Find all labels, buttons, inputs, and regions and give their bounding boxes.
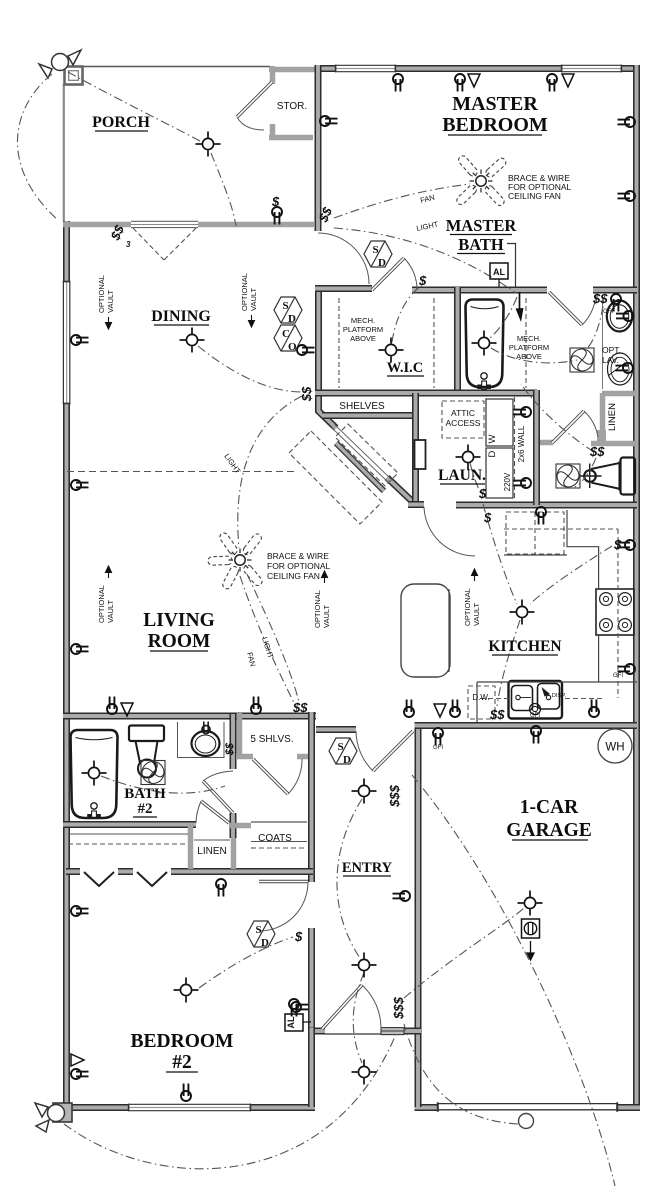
svg-text:S: S: [373, 244, 379, 256]
svg-text:GFI: GFI: [530, 713, 540, 719]
svg-text:VAULT: VAULT: [472, 603, 481, 626]
svg-text:KITCHEN: KITCHEN: [488, 638, 561, 655]
svg-text:D: D: [261, 937, 269, 949]
svg-text:$$: $$: [299, 386, 314, 402]
svg-text:LINEN: LINEN: [197, 846, 226, 857]
svg-text:D: D: [288, 313, 296, 325]
svg-text:#2: #2: [172, 1052, 192, 1073]
svg-text:220V: 220V: [503, 472, 512, 491]
svg-text:S: S: [256, 924, 262, 936]
svg-text:GARAGE: GARAGE: [506, 820, 592, 841]
svg-text:5 SHLVS.: 5 SHLVS.: [250, 734, 293, 745]
svg-text:$: $: [478, 486, 487, 501]
svg-text:O: O: [288, 341, 297, 353]
svg-text:1-CAR: 1-CAR: [520, 797, 579, 818]
svg-text:COATS: COATS: [258, 833, 292, 844]
svg-text:MECH.: MECH.: [351, 316, 375, 325]
svg-text:CEILING FAN: CEILING FAN: [267, 571, 320, 581]
svg-text:MASTER: MASTER: [446, 216, 518, 235]
svg-text:$: $: [294, 929, 303, 944]
svg-text:$: $: [483, 510, 492, 525]
svg-text:OPTIONAL: OPTIONAL: [240, 273, 249, 311]
svg-text:OPTIONAL: OPTIONAL: [463, 588, 472, 626]
svg-text:SHELVES: SHELVES: [339, 401, 385, 412]
svg-text:OPT.: OPT.: [602, 345, 621, 355]
svg-text:GFI: GFI: [603, 309, 613, 315]
svg-text:STOR.: STOR.: [277, 101, 307, 112]
svg-text:D: D: [343, 754, 351, 766]
svg-text:DINING: DINING: [151, 308, 211, 325]
svg-text:LIVING: LIVING: [143, 610, 215, 631]
svg-text:OPTIONAL: OPTIONAL: [313, 590, 322, 628]
svg-text:2x6 WALL: 2x6 WALL: [517, 425, 526, 462]
svg-text:BEDROOM: BEDROOM: [131, 1031, 234, 1052]
svg-text:3: 3: [126, 240, 131, 249]
svg-text:WH: WH: [605, 742, 624, 754]
svg-text:#2: #2: [138, 801, 153, 817]
svg-text:BATH: BATH: [458, 235, 504, 254]
svg-text:BEDROOM: BEDROOM: [442, 114, 548, 136]
svg-text:MECH.: MECH.: [517, 334, 541, 343]
svg-text:ABOVE: ABOVE: [350, 334, 376, 343]
svg-text:GFI: GFI: [433, 745, 443, 751]
svg-text:AL: AL: [286, 1016, 296, 1028]
svg-text:D: D: [378, 257, 386, 269]
svg-text:PORCH: PORCH: [92, 114, 150, 131]
svg-text:$: $: [613, 537, 622, 552]
svg-text:BATH: BATH: [124, 786, 166, 802]
svg-text:DISP.: DISP.: [552, 693, 567, 699]
svg-text:VAULT: VAULT: [249, 288, 258, 311]
svg-text:PLATFORM: PLATFORM: [343, 325, 383, 334]
svg-text:ENTRY: ENTRY: [342, 860, 393, 876]
svg-text:VAULT: VAULT: [106, 600, 115, 623]
svg-text:$: $: [271, 194, 280, 209]
svg-text:ABOVE: ABOVE: [516, 352, 542, 361]
svg-text:ROOM: ROOM: [148, 631, 211, 652]
svg-text:OPTIONAL: OPTIONAL: [97, 585, 106, 623]
svg-text:C: C: [282, 328, 290, 340]
svg-text:$: $: [418, 273, 427, 288]
svg-text:LAUN.: LAUN.: [438, 467, 486, 484]
svg-text:AL: AL: [493, 267, 505, 277]
svg-text:S: S: [338, 741, 344, 753]
svg-text:W: W: [487, 434, 498, 443]
svg-text:FOR OPTIONAL: FOR OPTIONAL: [267, 561, 331, 571]
svg-text:ATTIC: ATTIC: [451, 408, 475, 418]
svg-text:PLATFORM: PLATFORM: [509, 343, 549, 352]
svg-text:CEILING FAN: CEILING FAN: [508, 191, 561, 201]
svg-text:LAV.: LAV.: [602, 355, 619, 365]
svg-text:VAULT: VAULT: [322, 605, 331, 628]
svg-text:W.I.C: W.I.C: [387, 360, 424, 376]
svg-text:$$: $$: [592, 291, 608, 306]
svg-text:$$: $$: [224, 742, 236, 756]
svg-text:$$: $$: [292, 700, 308, 715]
svg-text:GFI: GFI: [613, 673, 623, 679]
svg-text:$$: $$: [589, 444, 605, 459]
svg-text:MASTER: MASTER: [452, 93, 538, 115]
svg-text:D: D: [487, 450, 498, 457]
svg-text:$$: $$: [489, 707, 505, 722]
svg-text:$$$: $$$: [387, 784, 402, 807]
svg-text:VAULT: VAULT: [106, 290, 115, 313]
svg-text:BRACE & WIRE: BRACE & WIRE: [267, 551, 329, 561]
svg-text:ACCESS: ACCESS: [446, 418, 481, 428]
svg-text:OPTIONAL: OPTIONAL: [97, 275, 106, 313]
svg-text:$$$: $$$: [391, 996, 406, 1019]
svg-text:D.W.: D.W.: [472, 693, 489, 702]
svg-text:LINEN: LINEN: [607, 403, 618, 431]
svg-text:S: S: [283, 300, 289, 312]
